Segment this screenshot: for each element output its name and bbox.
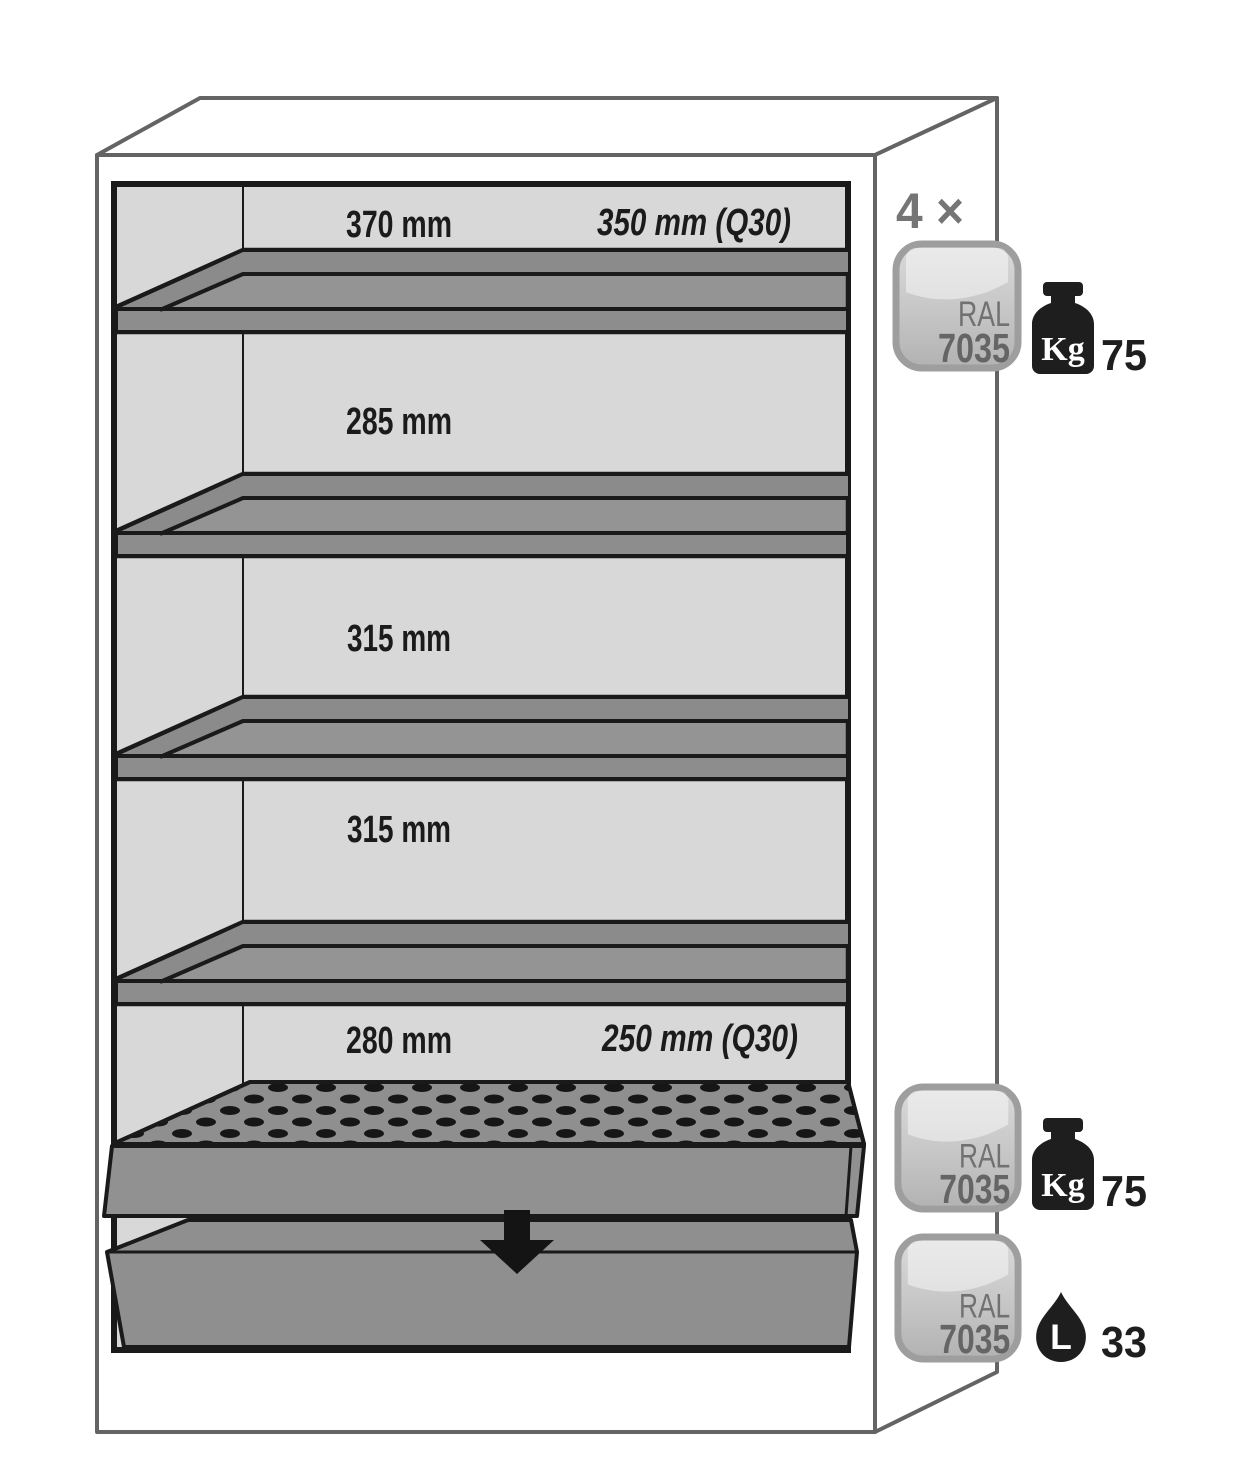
- section-1-q30-label: 350 mm (Q30): [597, 202, 791, 244]
- cabinet-dimension-diagram: RAL 7035 Kg L 370 mm 350 mm (Q30) 2: [0, 0, 1241, 1468]
- shelf-4: [116, 922, 848, 1004]
- section-2-width-label: 285 mm: [346, 401, 452, 443]
- shelf-color-badge: [896, 244, 1018, 371]
- shelf-3: [116, 697, 848, 779]
- shelf-load-value: 75: [1101, 331, 1147, 380]
- tray-volume-drop-icon: [1036, 1292, 1086, 1362]
- perforated-insert: [104, 1082, 864, 1216]
- shelf-2: [116, 474, 848, 556]
- section-5-q30-label: 250 mm (Q30): [601, 1018, 798, 1060]
- section-1-width-label: 370 mm: [346, 204, 452, 246]
- insert-color-badge: [898, 1087, 1018, 1212]
- sump-tray: [107, 1220, 857, 1347]
- tray-color-badge: [898, 1237, 1018, 1362]
- shelf-1: [116, 250, 848, 332]
- insert-load-value: 75: [1101, 1167, 1147, 1216]
- cabinet-top-face: [97, 98, 997, 155]
- shelves-multiplier-label: 4 ×: [896, 183, 964, 239]
- tray-volume-value: 33: [1101, 1318, 1147, 1367]
- section-3-width-label: 315 mm: [347, 618, 451, 660]
- shelf-load-weight-icon: [1032, 282, 1094, 374]
- section-5-width-label: 280 mm: [346, 1020, 452, 1062]
- insert-load-weight-icon: [1032, 1118, 1094, 1210]
- section-4-width-label: 315 mm: [347, 809, 451, 851]
